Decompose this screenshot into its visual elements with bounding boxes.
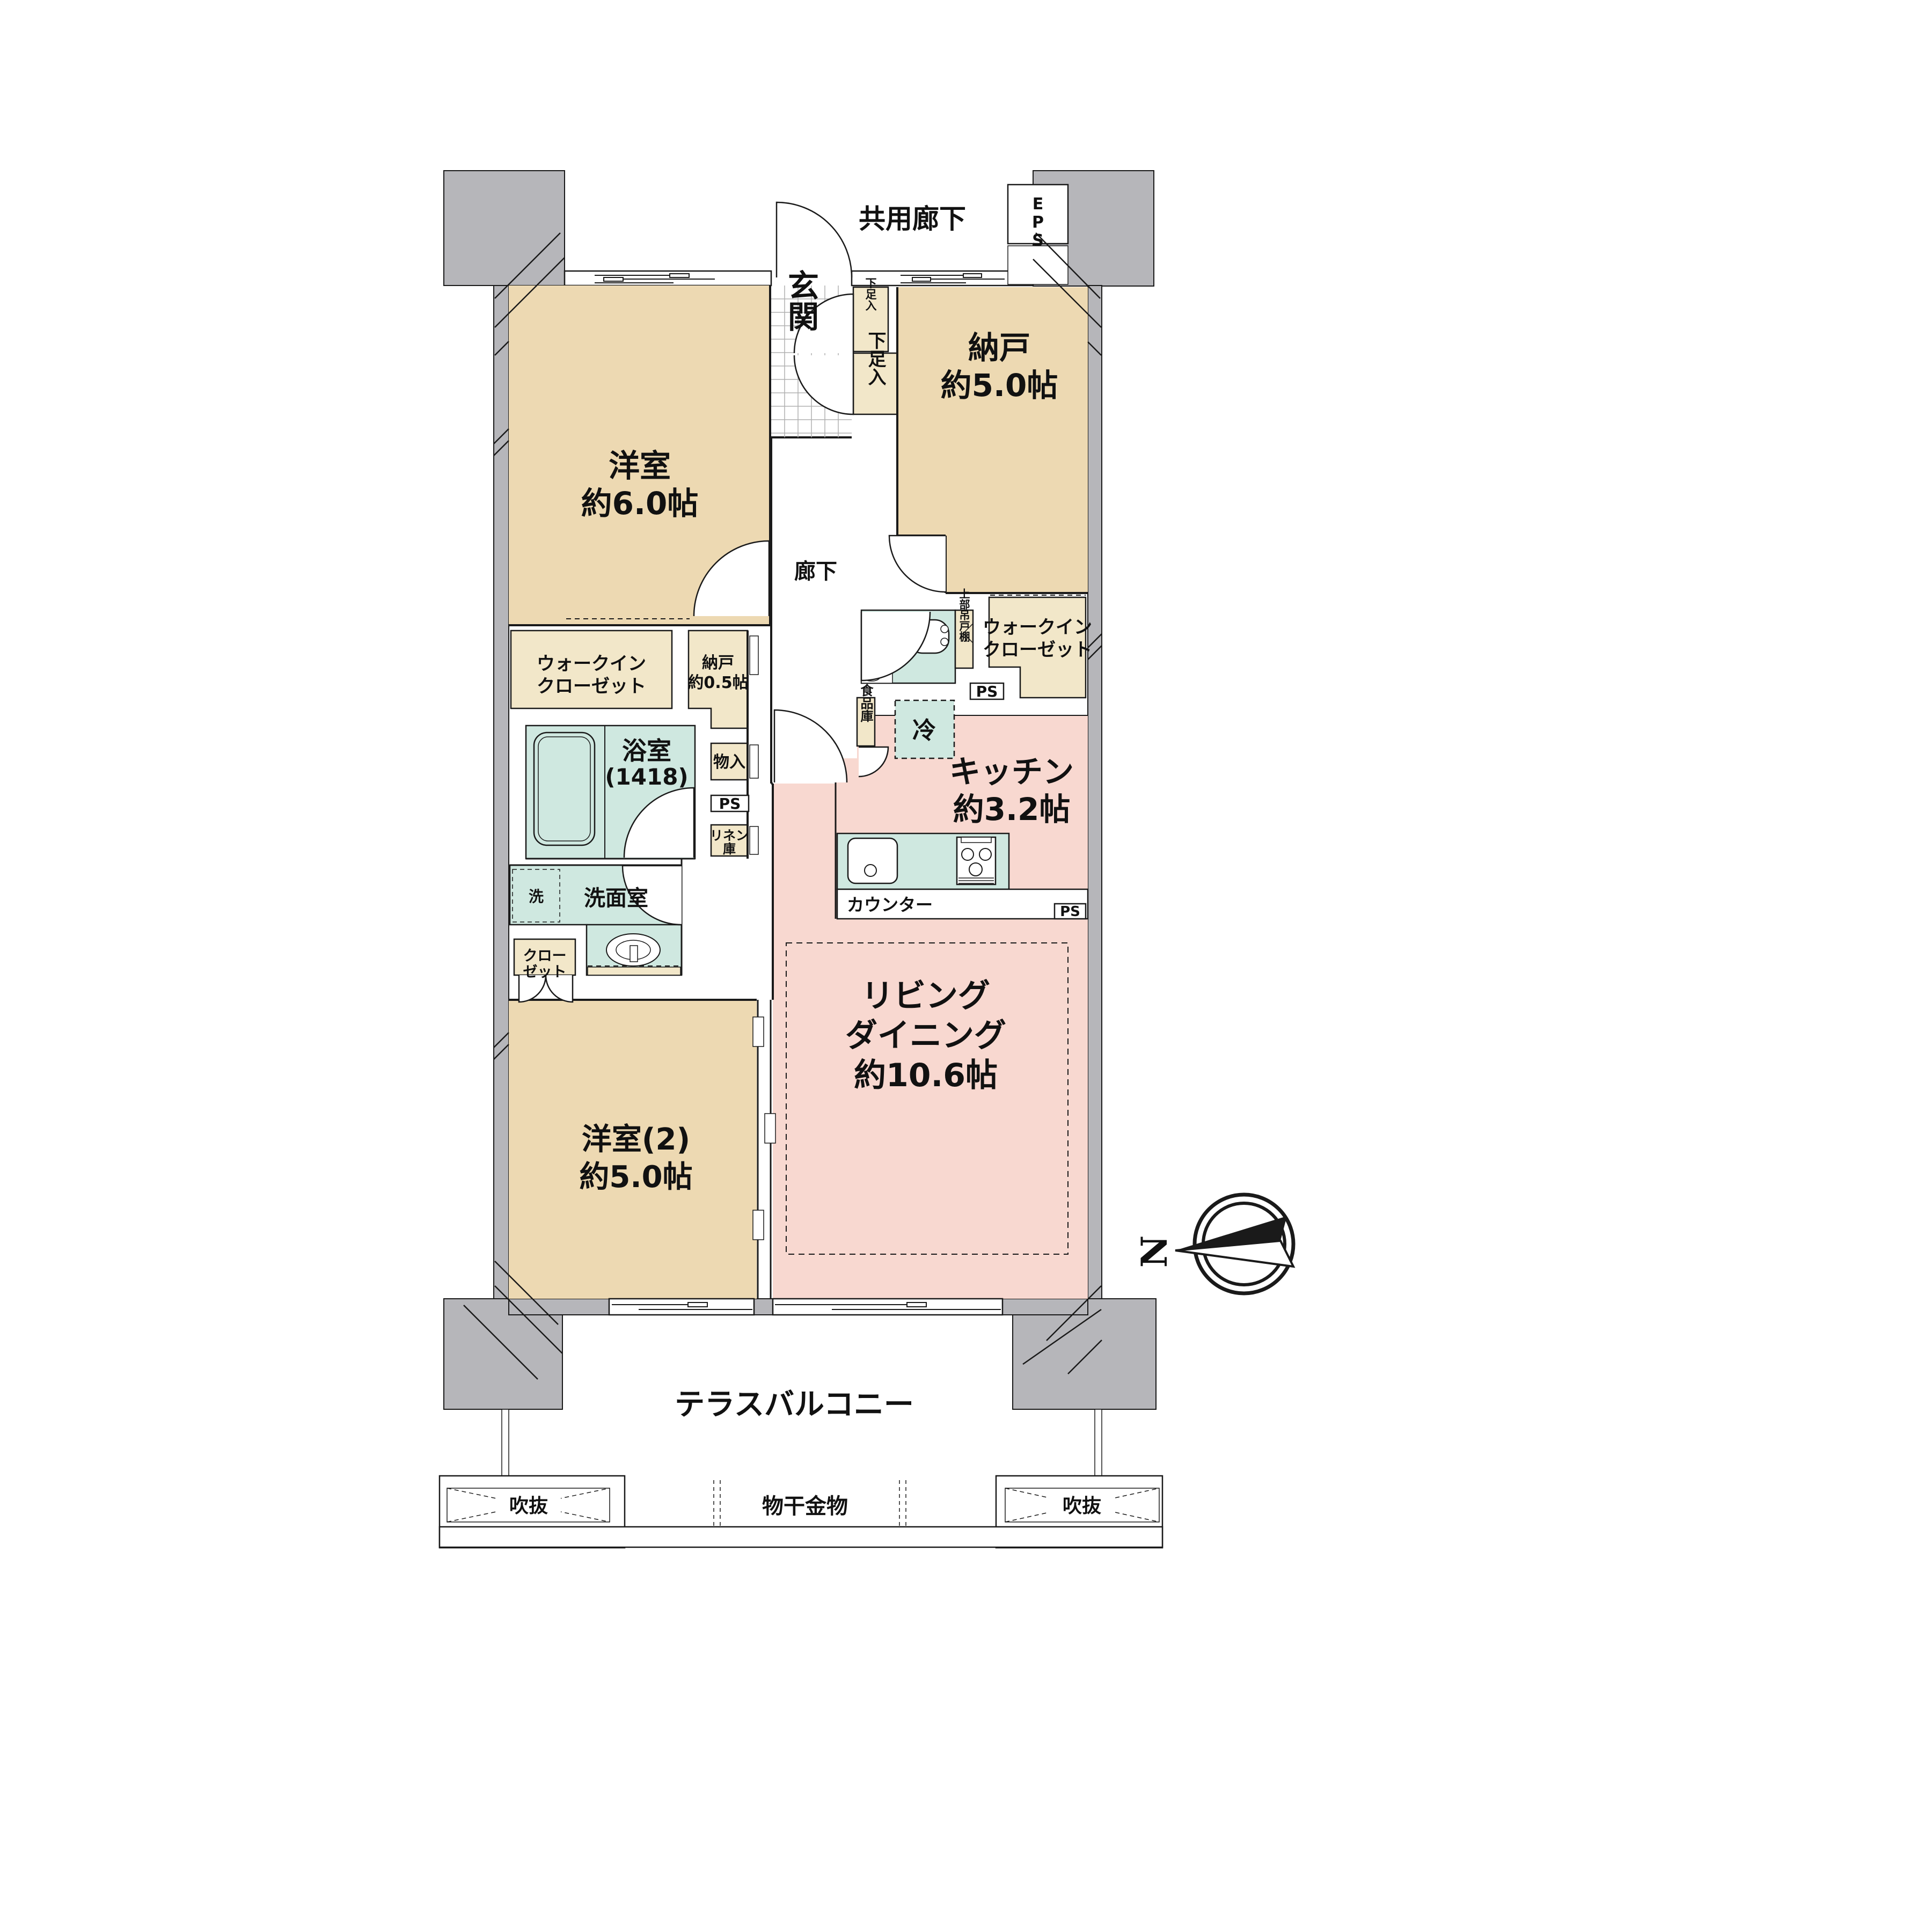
label-shoe-large: 下足入 — [865, 331, 886, 386]
label-counter: カウンター — [847, 895, 933, 915]
kitchen-sink — [848, 838, 897, 883]
label-hallway: 廊下 — [794, 559, 837, 584]
label-balcony: テラスバルコニー — [675, 1387, 914, 1422]
kitchen-door — [774, 710, 847, 782]
label-eps-e: E — [1033, 195, 1044, 214]
label-monoire: 物入 — [713, 753, 745, 772]
storage-door — [889, 536, 946, 592]
label-wic-left-2: クローゼット — [537, 676, 646, 697]
floorplan-svg: N 共用廊下 E P S 玄関 下足入 下足入 洋室 約6.0帖 納戸 約5.0… — [0, 0, 1932, 1932]
label-bedroom1-name: 洋室 — [609, 448, 671, 484]
label-powder-room: 洗面室 — [584, 886, 648, 911]
label-wic-right-1: ウォークイン — [983, 617, 1092, 638]
window-living — [773, 1299, 1002, 1315]
balcony-post-right — [1095, 1409, 1102, 1476]
label-living-3: 約10.6帖 — [854, 1057, 998, 1094]
label-void-right: 吹抜 — [1063, 1495, 1101, 1517]
column-top-left — [444, 171, 565, 286]
label-linen-2: 庫 — [723, 841, 736, 857]
label-living-2: ダイニング — [845, 1017, 1006, 1055]
label-living-1: リビング — [861, 977, 990, 1015]
balcony-structure — [440, 1409, 1162, 1548]
balcony-outer-bar — [440, 1527, 1162, 1547]
label-bedroom1-size: 約6.0帖 — [581, 485, 699, 522]
label-storage-size: 約5.0帖 — [941, 367, 1058, 404]
label-kitchen-name: キッチン — [949, 753, 1074, 790]
wall-left — [494, 286, 509, 1299]
label-eps-p: P — [1032, 213, 1044, 232]
label-closet-1: クロー — [523, 948, 567, 964]
shoe-door-2 — [794, 355, 853, 414]
label-upper-cabinet: 上部吊戸棚 — [957, 588, 970, 642]
label-drying: 物干金物 — [762, 1494, 848, 1519]
entrance-door — [777, 202, 852, 277]
label-bath-name: 浴室 — [622, 736, 671, 765]
wall-right — [1088, 286, 1102, 1299]
label-shoe-small: 下足入 — [864, 277, 877, 311]
balcony-post-left — [502, 1409, 509, 1476]
label-ps-upper: PS — [719, 795, 741, 813]
label-eps-s: S — [1032, 231, 1044, 250]
window-bedroom2 — [609, 1299, 754, 1315]
label-bath-size: (1418) — [605, 764, 688, 790]
label-washer: 洗 — [529, 888, 544, 905]
label-fridge: 冷 — [912, 717, 936, 744]
label-common-corridor: 共用廊下 — [859, 203, 966, 235]
compass: N — [1133, 1195, 1293, 1293]
label-ps-kitchen: PS — [1060, 904, 1080, 920]
label-storage-name: 納戸 — [968, 330, 1030, 366]
label-wic-right-2: クローゼット — [983, 639, 1092, 661]
label-genkan: 玄関 — [782, 269, 819, 332]
label-kitchen-size: 約3.2帖 — [953, 791, 1071, 828]
wall-bottom-1 — [509, 1299, 609, 1315]
label-wic-left-1: ウォークイン — [537, 653, 646, 675]
floorplan-page: N 共用廊下 E P S 玄関 下足入 下足入 洋室 約6.0帖 納戸 約5.0… — [0, 0, 1932, 1932]
label-void-left: 吹抜 — [509, 1495, 548, 1517]
label-storage-small-1: 納戸 — [702, 654, 734, 672]
label-closet-2: ゼット — [523, 964, 567, 980]
vanity-strip — [588, 967, 680, 975]
label-bedroom2-name: 洋室(2) — [582, 1122, 690, 1157]
compass-north-label: N — [1133, 1235, 1175, 1268]
label-bedroom2-size: 約5.0帖 — [579, 1160, 692, 1195]
wall-bottom-2 — [754, 1299, 773, 1315]
label-ps-mid: PS — [976, 683, 998, 700]
label-storage-small-2: 約0.5帖 — [687, 674, 748, 692]
stove — [957, 837, 996, 884]
label-linen-1: リネン — [710, 828, 749, 843]
eps-lower-box — [1008, 246, 1068, 284]
label-pantry: 食品庫 — [858, 683, 873, 723]
